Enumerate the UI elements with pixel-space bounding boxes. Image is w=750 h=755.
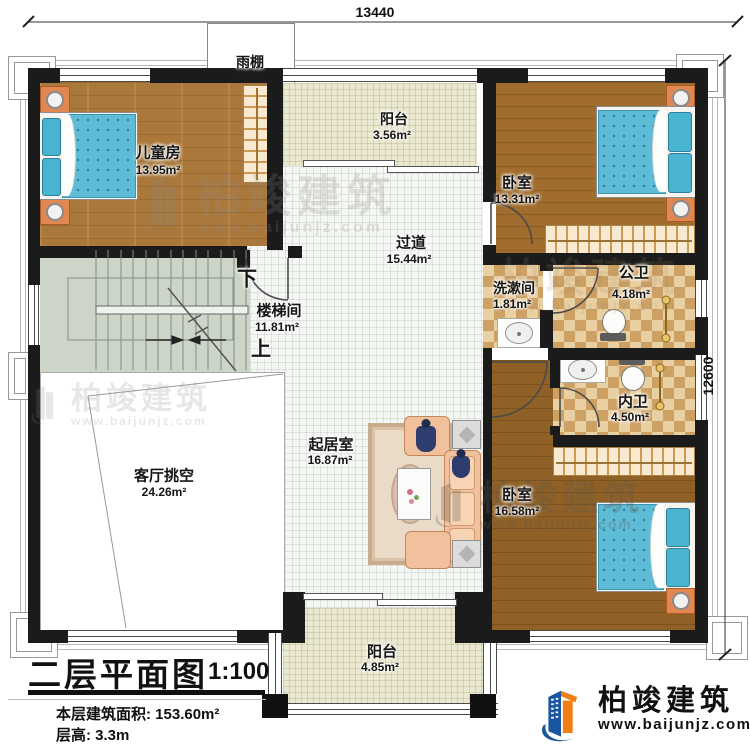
pillow: [668, 112, 692, 152]
dim-tick: [23, 16, 34, 27]
title-underline: [28, 690, 265, 695]
corner-frame: [706, 616, 748, 660]
room-label-corridor: 过道: [396, 232, 426, 253]
dimension-top: 13440: [330, 4, 420, 20]
wall: [540, 310, 553, 348]
person-figure: [452, 456, 470, 478]
pillow: [42, 158, 61, 196]
room-label-void: 客厅挑空: [134, 465, 194, 486]
room-area-washroom: 1.81m²: [493, 297, 531, 311]
armchair: [405, 531, 451, 569]
wall: [477, 68, 528, 83]
wall: [553, 435, 708, 447]
sliding-door-panel: [303, 160, 395, 167]
brand-name: 柏竣建筑: [598, 686, 750, 716]
canopy-label: 雨棚: [236, 52, 264, 72]
room-area-children: 13.95m²: [136, 163, 181, 177]
side-table: [452, 540, 481, 568]
window: [68, 630, 237, 642]
wall: [540, 265, 553, 271]
nightstand: [40, 198, 70, 225]
brand-logo: 柏竣建筑 www.baijunjz.com: [534, 686, 750, 744]
room-area-bedroom-top: 13.31m²: [495, 192, 540, 206]
room-label-bedroom-top: 卧室: [502, 172, 532, 193]
room-area-balcony-bottom: 4.85m²: [361, 660, 399, 674]
room-area-private-bath: 4.50m²: [611, 410, 649, 424]
dim-tick: [732, 16, 743, 27]
floor-living-void: [40, 372, 285, 632]
room-area-balcony-top: 3.56m²: [373, 128, 411, 142]
wall: [483, 360, 492, 630]
plan-title: 二层平面图: [28, 648, 208, 696]
balcony-post: [262, 694, 288, 718]
wall: [550, 426, 560, 435]
window: [695, 280, 707, 317]
room-label-stairwell: 楼梯间: [256, 300, 301, 321]
bed-sheet: [652, 110, 666, 192]
balcony-railing: [268, 703, 498, 715]
wardrobe: [545, 225, 695, 254]
sliding-door-panel: [377, 599, 457, 606]
dimension-right: 12600: [700, 336, 716, 416]
brand-logo-icon: [534, 686, 588, 744]
wardrobe: [243, 85, 269, 183]
wall: [483, 348, 492, 360]
coffee-table: [397, 468, 431, 520]
side-table: [452, 420, 481, 449]
nightstand: [666, 588, 695, 614]
room-label-balcony-top: 阳台: [380, 109, 408, 129]
sliding-door-panel: [387, 166, 479, 173]
window: [528, 68, 665, 82]
toilet: [602, 309, 626, 335]
wall: [695, 68, 708, 280]
wall: [455, 592, 492, 643]
wall: [40, 246, 247, 258]
room-area-corridor: 15.44m²: [387, 252, 432, 266]
nightstand: [40, 86, 70, 113]
window: [28, 285, 39, 345]
pillow: [666, 508, 690, 547]
wall: [670, 630, 708, 643]
nightstand: [666, 196, 695, 222]
floor-stairwell: [40, 248, 250, 372]
wall: [267, 82, 283, 250]
pillow: [42, 118, 61, 156]
floor-plan-canvas: 雨棚: [0, 0, 750, 755]
wall: [695, 420, 708, 643]
wall: [550, 360, 560, 388]
toilet-tank: [600, 333, 626, 341]
room-area-void: 24.26m²: [142, 485, 187, 499]
window: [530, 630, 670, 642]
wall: [28, 68, 40, 285]
window: [60, 68, 150, 82]
wall: [483, 82, 496, 202]
stair-down-label: 下: [237, 263, 257, 292]
title-underline-thin: [8, 699, 266, 700]
brand-website: www.baijunjz.com: [598, 716, 750, 733]
balcony-railing: [483, 643, 497, 694]
pillow: [666, 548, 690, 587]
sink-basin: [505, 322, 533, 344]
room-label-bedroom-bottom: 卧室: [502, 484, 532, 505]
sliding-door-panel: [303, 593, 383, 600]
room-label-private-bath: 内卫: [618, 391, 648, 412]
stair-up-label: 上: [251, 333, 271, 362]
wall: [493, 253, 708, 265]
wall: [283, 592, 305, 643]
balcony-railing: [283, 68, 477, 82]
sink-basin: [568, 359, 597, 380]
room-label-washroom: 洗漱间: [493, 278, 535, 298]
pillow: [668, 153, 692, 193]
floor-area-text: 本层建筑面积: 153.60m²: [56, 703, 219, 724]
balcony-railing: [268, 633, 282, 694]
room-label-children: 儿童房: [135, 142, 180, 163]
room-label-living: 起居室: [308, 434, 353, 455]
floor-height-text: 层高: 3.3m: [56, 724, 129, 745]
room-area-living: 16.87m²: [308, 453, 353, 467]
balcony-post: [470, 694, 496, 718]
wall: [28, 345, 40, 630]
bed-sheet: [650, 504, 664, 588]
wall: [28, 630, 68, 643]
room-label-balcony-bottom: 阳台: [367, 641, 397, 662]
room-area-public-bath: 4.18m²: [612, 287, 650, 301]
room-label-public-bath: 公卫: [619, 262, 649, 283]
room-area-bedroom-bottom: 16.58m²: [495, 504, 540, 518]
plan-scale: 1:100: [208, 658, 269, 686]
wall: [288, 246, 302, 258]
wall: [548, 348, 708, 360]
person-figure: [416, 426, 436, 452]
toilet: [621, 366, 645, 391]
wardrobe: [553, 447, 695, 476]
